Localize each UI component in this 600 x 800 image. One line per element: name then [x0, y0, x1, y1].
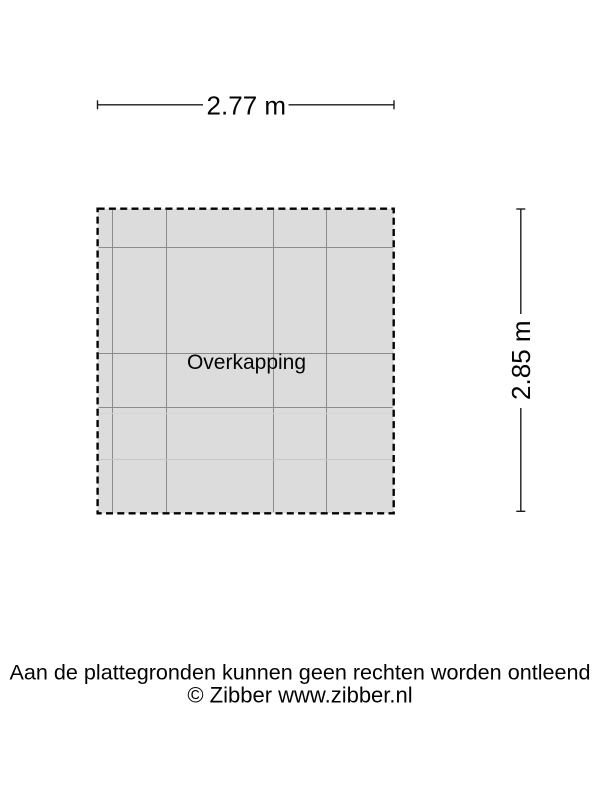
- svg-text:2.77 m: 2.77 m: [207, 91, 287, 121]
- svg-text:Aan de plattegronden kunnen ge: Aan de plattegronden kunnen geen rechten…: [9, 660, 590, 685]
- svg-text:2.85 m: 2.85 m: [506, 320, 536, 400]
- svg-text:Overkapping: Overkapping: [187, 351, 306, 374]
- svg-text:© Zibber www.zibber.nl: © Zibber www.zibber.nl: [187, 682, 412, 707]
